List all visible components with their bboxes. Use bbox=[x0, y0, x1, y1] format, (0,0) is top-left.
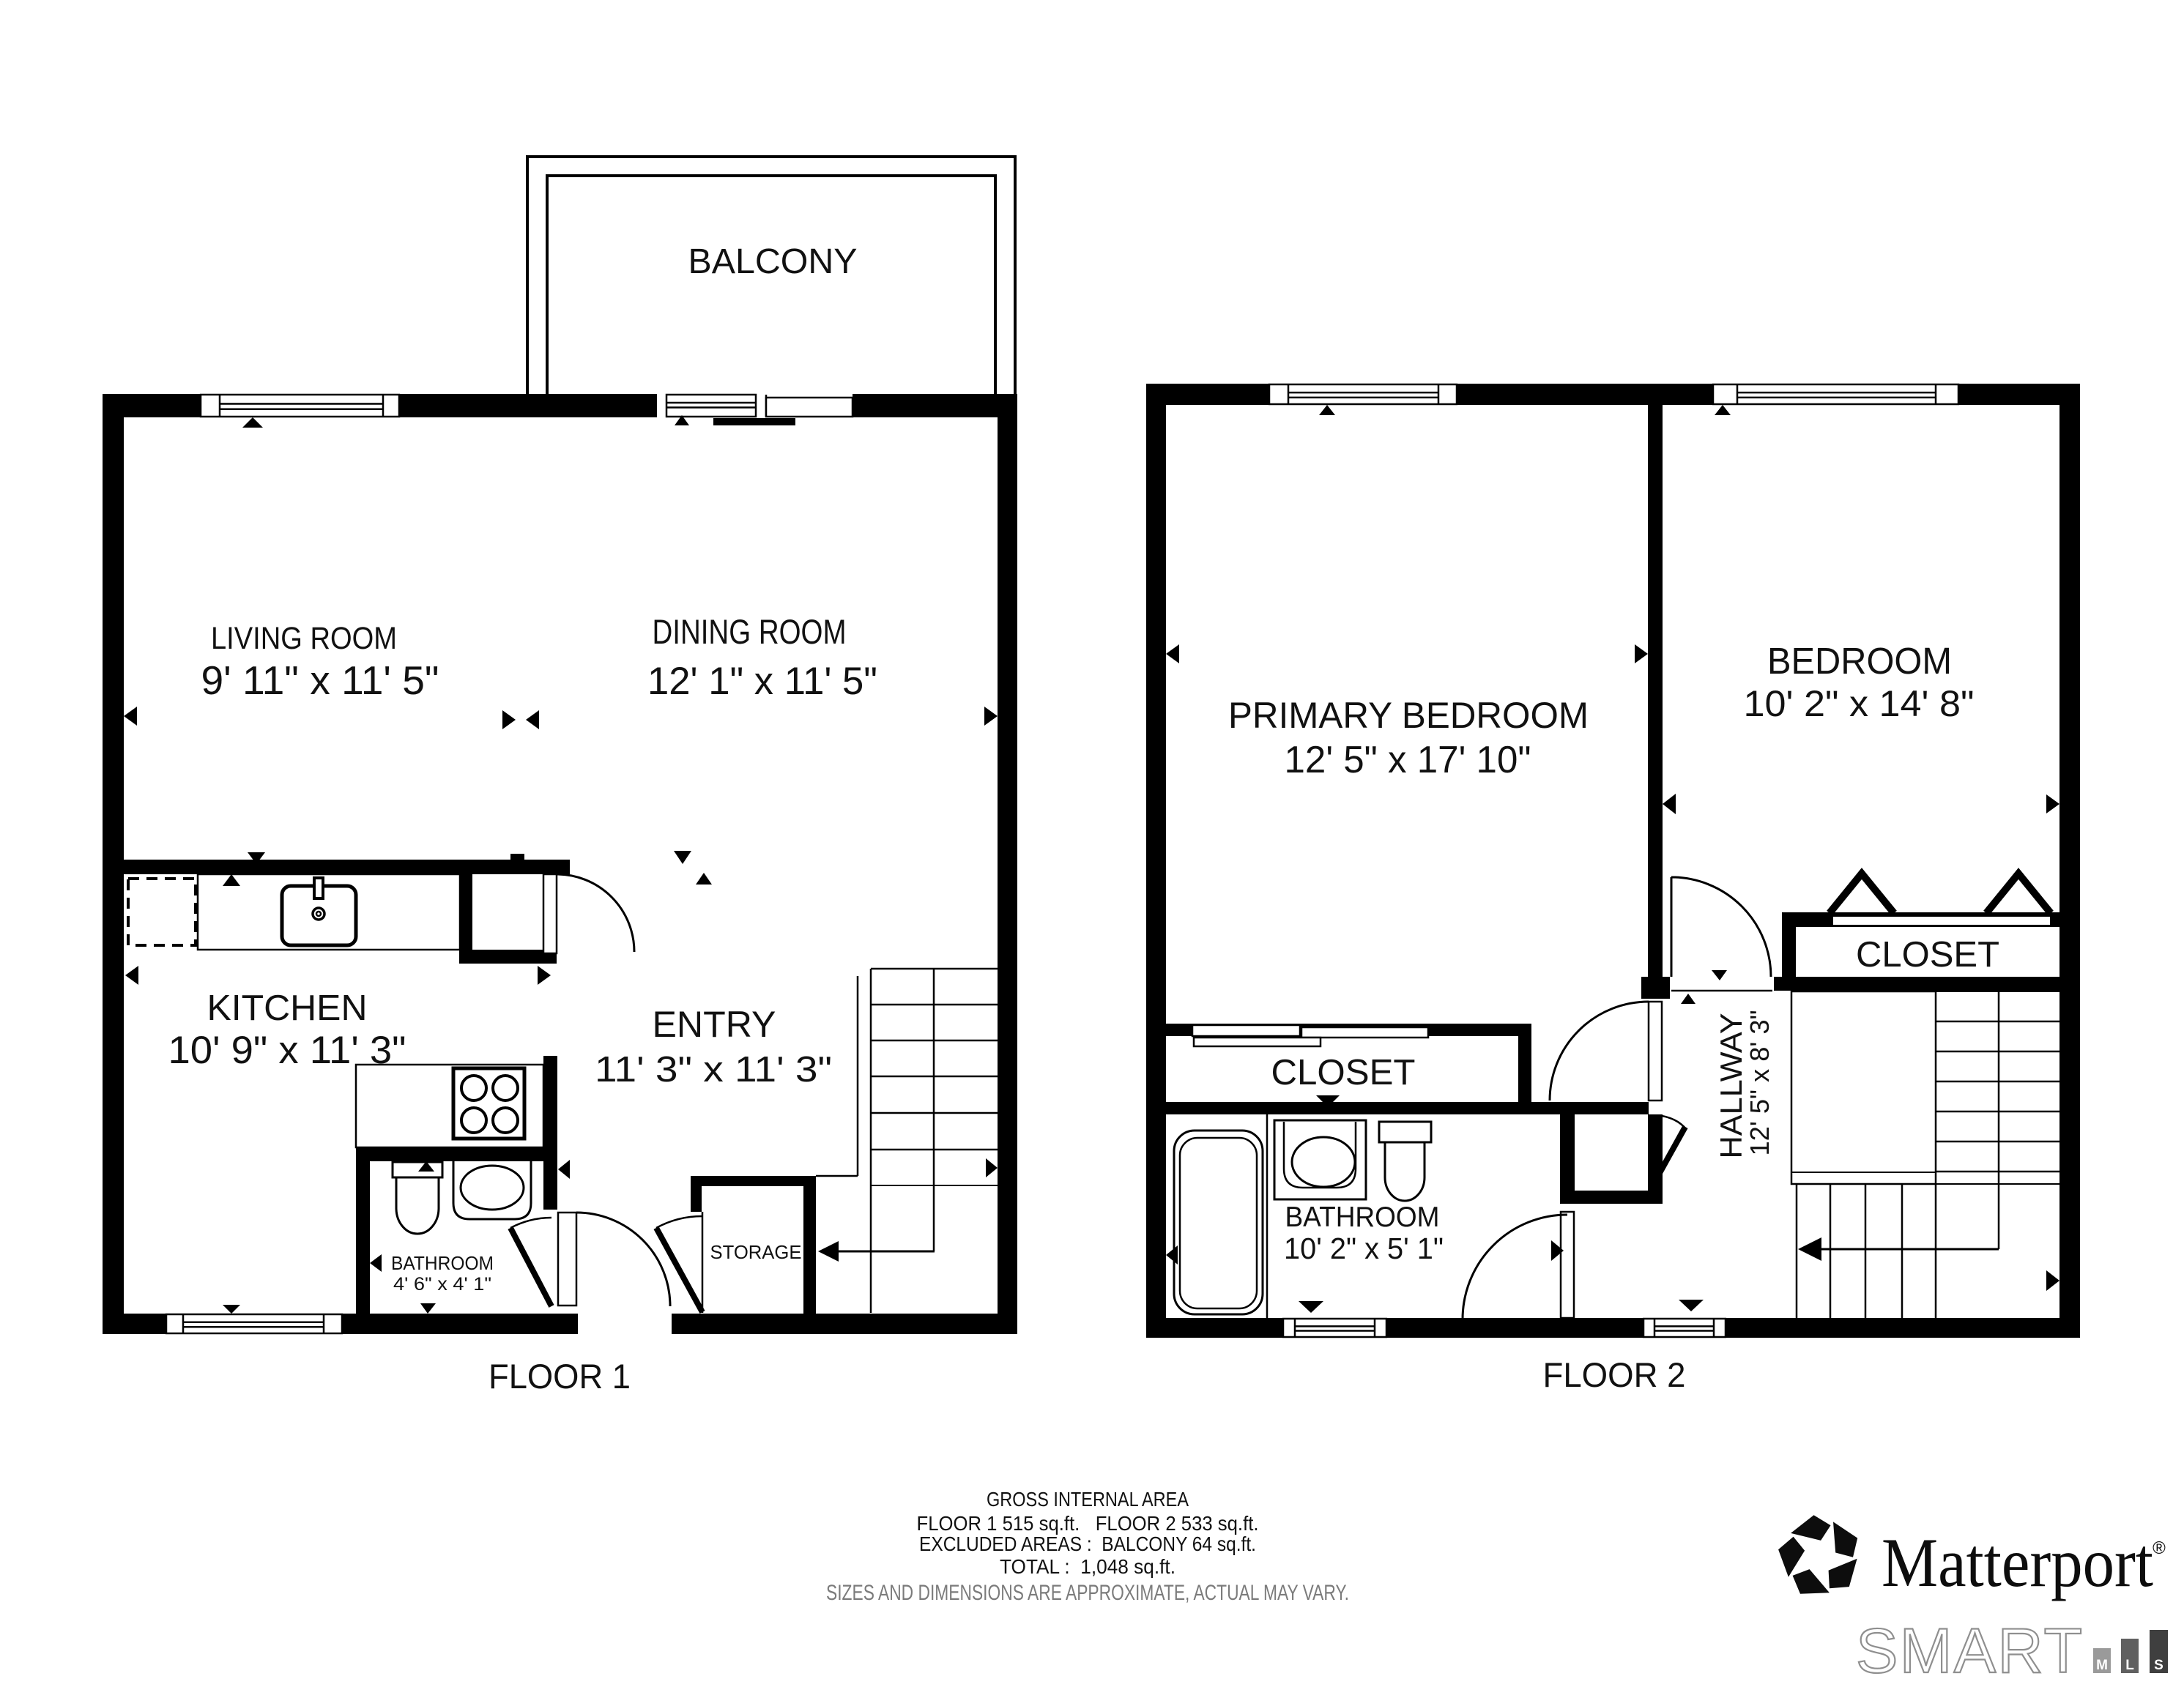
svg-text:BATHROOM: BATHROOM bbox=[1285, 1202, 1440, 1233]
svg-text:S: S bbox=[2154, 1658, 2163, 1673]
svg-text:11' 3" x 11' 3": 11' 3" x 11' 3" bbox=[595, 1050, 832, 1090]
svg-text:12' 1" x 11' 5": 12' 1" x 11' 5" bbox=[647, 660, 877, 703]
svg-text:BATHROOM: BATHROOM bbox=[391, 1252, 494, 1274]
svg-text:10' 2" x 14' 8": 10' 2" x 14' 8" bbox=[1744, 683, 1975, 724]
svg-text:KITCHEN: KITCHEN bbox=[207, 988, 368, 1028]
svg-text:GROSS INTERNAL AREA: GROSS INTERNAL AREA bbox=[987, 1488, 1189, 1511]
svg-text:FLOOR 1: FLOOR 1 bbox=[489, 1357, 631, 1396]
svg-text:®: ® bbox=[2153, 1538, 2166, 1558]
svg-text:PRIMARY BEDROOM: PRIMARY BEDROOM bbox=[1228, 695, 1589, 736]
svg-text:HALLWAY: HALLWAY bbox=[1714, 1013, 1748, 1159]
svg-text:M: M bbox=[2096, 1658, 2108, 1673]
svg-text:FLOOR 2: FLOOR 2 bbox=[1543, 1355, 1686, 1394]
svg-text:SIZES AND DIMENSIONS ARE APPRO: SIZES AND DIMENSIONS ARE APPROXIMATE, AC… bbox=[826, 1581, 1349, 1605]
svg-text:9' 11" x 11' 5": 9' 11" x 11' 5" bbox=[201, 658, 439, 703]
svg-text:12' 5" x 8' 3": 12' 5" x 8' 3" bbox=[1745, 1010, 1775, 1156]
svg-text:L: L bbox=[2125, 1658, 2134, 1673]
svg-text:BEDROOM: BEDROOM bbox=[1767, 640, 1952, 682]
svg-text:CLOSET: CLOSET bbox=[1856, 935, 1999, 975]
svg-text:CLOSET: CLOSET bbox=[1271, 1053, 1416, 1092]
svg-text:10' 2" x 5' 1": 10' 2" x 5' 1" bbox=[1284, 1232, 1444, 1265]
svg-text:LIVING ROOM: LIVING ROOM bbox=[211, 621, 397, 656]
svg-text:FLOOR 1 515 sq.ft. FLOOR 2 5: FLOOR 1 515 sq.ft. FLOOR 2 533 sq.ft. bbox=[917, 1512, 1259, 1535]
svg-text:ENTRY: ENTRY bbox=[653, 1004, 776, 1045]
svg-text:EXCLUDED AREAS : BALCONY 64 s: EXCLUDED AREAS : BALCONY 64 sq.ft. bbox=[919, 1533, 1256, 1555]
svg-text:DINING ROOM: DINING ROOM bbox=[653, 612, 847, 651]
svg-text:TOTAL : 1,048 sq.ft.: TOTAL : 1,048 sq.ft. bbox=[1000, 1555, 1175, 1578]
svg-text:12' 5" x 17' 10": 12' 5" x 17' 10" bbox=[1285, 739, 1531, 781]
svg-text:SMART: SMART bbox=[1856, 1616, 2084, 1686]
svg-text:BALCONY: BALCONY bbox=[688, 242, 858, 281]
svg-text:4' 6" x 4' 1": 4' 6" x 4' 1" bbox=[393, 1274, 491, 1295]
svg-text:Matterport: Matterport bbox=[1882, 1524, 2153, 1601]
svg-text:STORAGE: STORAGE bbox=[710, 1241, 802, 1263]
svg-text:10' 9" x 11' 3": 10' 9" x 11' 3" bbox=[168, 1029, 406, 1072]
